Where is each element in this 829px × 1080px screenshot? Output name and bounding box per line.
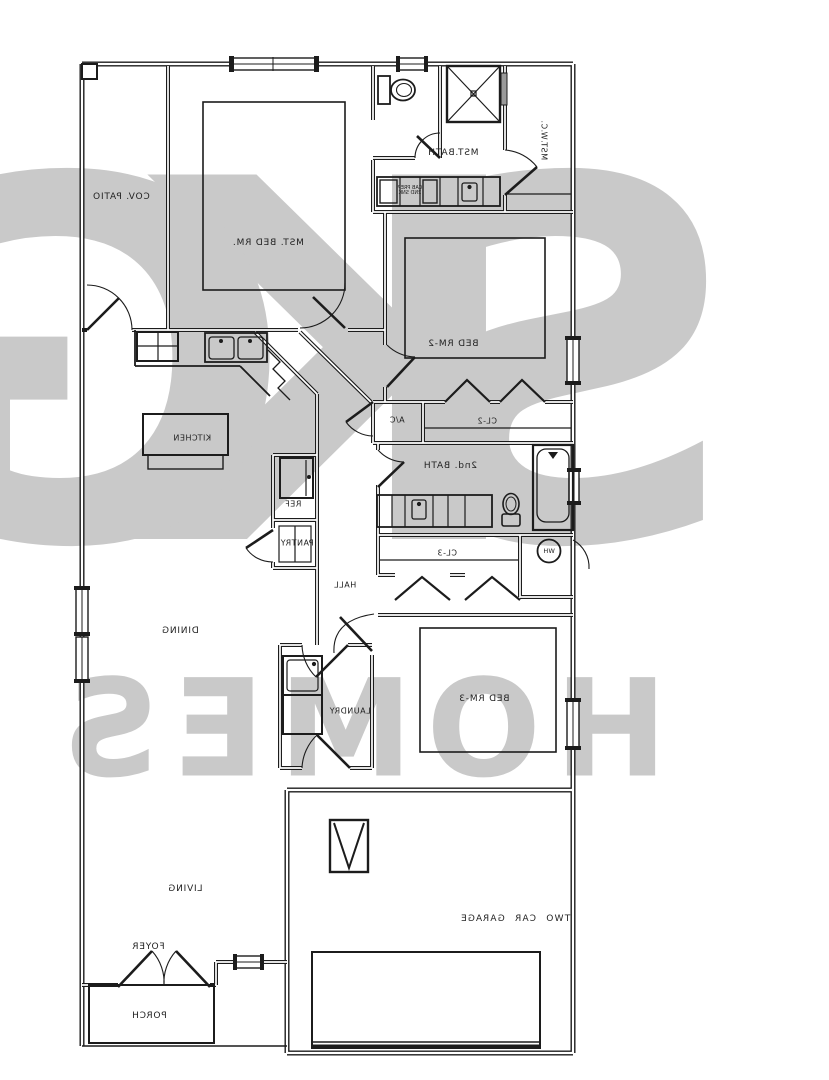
room-label-living: LIVING: [168, 884, 203, 894]
washer-dryer-icon: [283, 656, 322, 734]
room-label-pantry: PANTRY: [280, 539, 314, 548]
room-label-hall: HALL: [334, 581, 356, 590]
shower-icon: [447, 66, 507, 122]
room-label-cov-patio: COV. PATIO: [92, 192, 149, 202]
sink-icon: [412, 500, 426, 519]
floorplan-drawing: [0, 0, 829, 1080]
attic-ladder-icon: [330, 820, 368, 872]
master-vanity: [377, 177, 500, 206]
bathtub-icon: [533, 445, 573, 530]
room-label-second-bath: 2nd. BATH: [423, 461, 477, 471]
toilet2-icon: [502, 494, 520, 527]
room-label-wh: WH: [543, 547, 555, 555]
room-label-cl-2: CL-2: [477, 417, 497, 426]
room-label-ref: REF: [285, 500, 302, 509]
vanity-note: CAB PREP 2ND SNK: [398, 186, 423, 196]
room-label-dining: DINING: [161, 626, 198, 636]
patio-column: [82, 64, 97, 79]
room-label-mst-wc: MST.W.C.: [540, 120, 549, 160]
floorplan-canvas: SKG HOMES: [0, 0, 829, 1080]
room-label-porch: PORCH: [131, 1011, 166, 1021]
window-caps: [74, 56, 581, 970]
room-label-kitchen: KITCHEN: [173, 434, 211, 443]
garage-door: [312, 952, 540, 1048]
toilet-icon: [378, 76, 415, 104]
room-label-laundry: LAUNDRY: [329, 707, 371, 716]
refrigerator-icon: [280, 458, 313, 498]
room-label-foyer: FOYER: [131, 942, 164, 952]
kitchen-sink-icon: [205, 333, 267, 362]
second-vanity: [377, 495, 492, 527]
room-label-garage: TWO CAR GARAGE: [460, 914, 570, 924]
room-label-mst-bath: MST.BATH: [427, 148, 478, 158]
windows: [74, 56, 581, 970]
room-label-ac: A/C: [389, 416, 404, 425]
room-label-cl-3: CL-3: [437, 549, 457, 558]
room-label-bed-rm-2: BED RM-2: [427, 339, 478, 349]
window: [76, 58, 579, 968]
bifold-doors: [395, 380, 545, 600]
range-icon: [137, 332, 178, 361]
vanity-note-line2: 2ND SNK: [399, 190, 422, 196]
sink-icon: [462, 183, 477, 201]
room-label-bed-rm-3: BED RM-3: [458, 694, 509, 704]
room-label-mst-bed-rm: MST. BED RM.: [232, 238, 304, 248]
